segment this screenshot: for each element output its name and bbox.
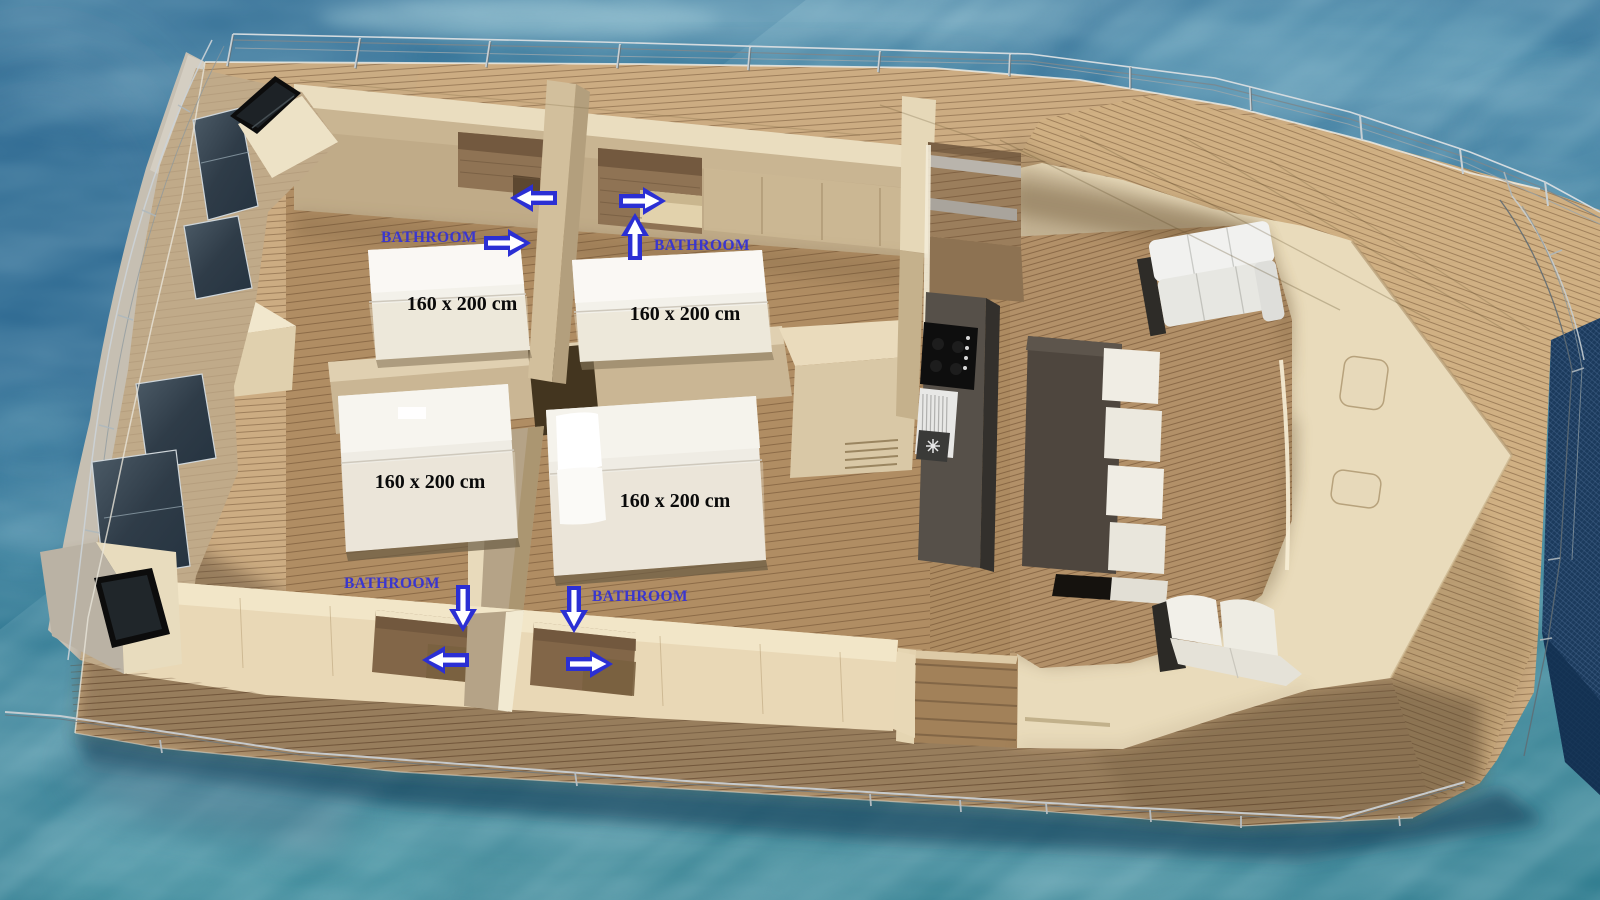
svg-text:BATHROOM: BATHROOM (344, 575, 440, 592)
svg-text:160 x 200 cm: 160 x 200 cm (630, 303, 741, 325)
svg-text:160 x 200 cm: 160 x 200 cm (620, 490, 731, 512)
svg-text:BATHROOM: BATHROOM (381, 229, 477, 246)
svg-text:160 x 200 cm: 160 x 200 cm (375, 471, 486, 493)
svg-text:BATHROOM: BATHROOM (654, 237, 750, 254)
svg-text:160 x 200 cm: 160 x 200 cm (407, 293, 518, 315)
svg-text:BATHROOM: BATHROOM (592, 588, 688, 605)
